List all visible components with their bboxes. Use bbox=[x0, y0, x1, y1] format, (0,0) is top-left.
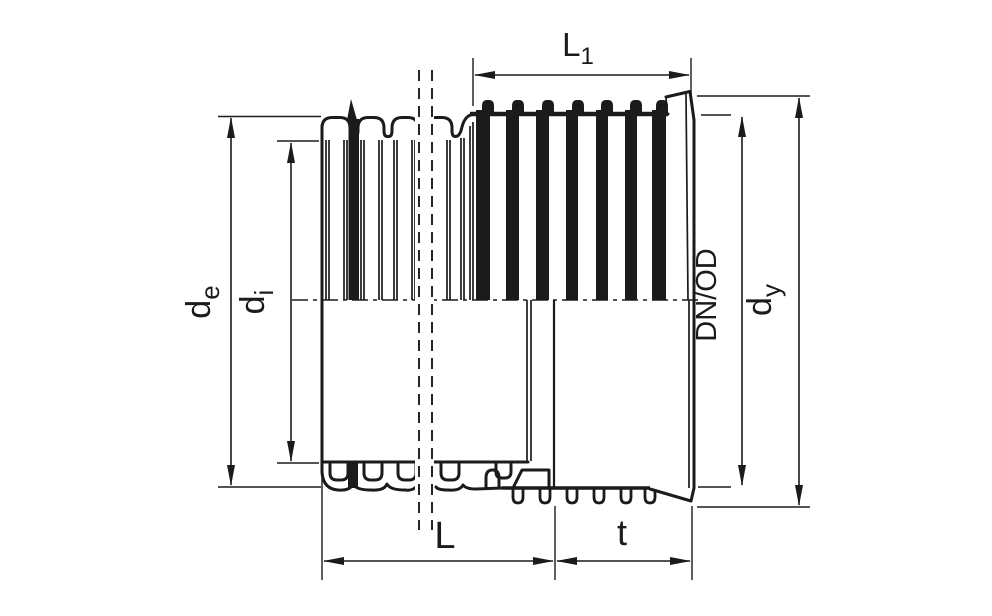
socket-body bbox=[470, 92, 694, 504]
arrowhead bbox=[738, 465, 746, 486]
socket-bottom-wall bbox=[502, 488, 694, 503]
arrowhead bbox=[670, 557, 691, 565]
socket-bottom-chamfer bbox=[650, 488, 694, 501]
pipe-crest-outline bbox=[322, 114, 668, 146]
bell-rib-profile bbox=[486, 470, 499, 488]
arrowhead bbox=[795, 97, 803, 118]
dim-label-de: de bbox=[180, 285, 225, 318]
arrowhead bbox=[227, 117, 235, 138]
arrowhead bbox=[738, 116, 746, 137]
dim-label-di: di bbox=[234, 290, 279, 315]
arrowhead bbox=[323, 557, 344, 565]
corrugation-wall-lines bbox=[326, 122, 473, 300]
arrowhead bbox=[533, 557, 554, 565]
dim-label-t: t bbox=[617, 512, 627, 553]
dimension-di: di bbox=[234, 141, 319, 463]
arrowhead bbox=[556, 557, 577, 565]
bottom-envelope-right bbox=[436, 485, 502, 490]
diagram-canvas: L1 de di DN/OD dy bbox=[0, 0, 992, 616]
dim-label-l: L bbox=[434, 515, 455, 557]
socket-internal-edges bbox=[513, 300, 554, 488]
arrowhead bbox=[795, 485, 803, 506]
dim-label-dn-od: DN/OD bbox=[691, 248, 723, 341]
dimension-l1: L1 bbox=[473, 26, 691, 106]
arrowhead bbox=[669, 71, 690, 79]
dim-label-dy: dy bbox=[741, 284, 786, 316]
socket-stop-block bbox=[513, 470, 549, 488]
corrugated-pipe-body bbox=[322, 99, 668, 490]
break-band bbox=[415, 66, 434, 536]
bottom-envelope bbox=[322, 464, 416, 490]
socket-ribs bbox=[476, 110, 666, 300]
dim-label-l1: L1 bbox=[562, 26, 594, 70]
dimension-dn-od: DN/OD bbox=[691, 115, 746, 487]
filled-corrugation-wall bbox=[349, 119, 360, 300]
crest-spike-mark bbox=[347, 99, 357, 120]
socket-mouth-rim bbox=[666, 92, 694, 489]
arrowhead bbox=[474, 71, 495, 79]
pipe-socket-technical-drawing: L1 de di DN/OD dy bbox=[0, 0, 992, 616]
arrowhead bbox=[227, 465, 235, 486]
dimension-t: t bbox=[556, 506, 692, 580]
arrowhead bbox=[287, 441, 295, 462]
arrowhead bbox=[287, 142, 295, 163]
